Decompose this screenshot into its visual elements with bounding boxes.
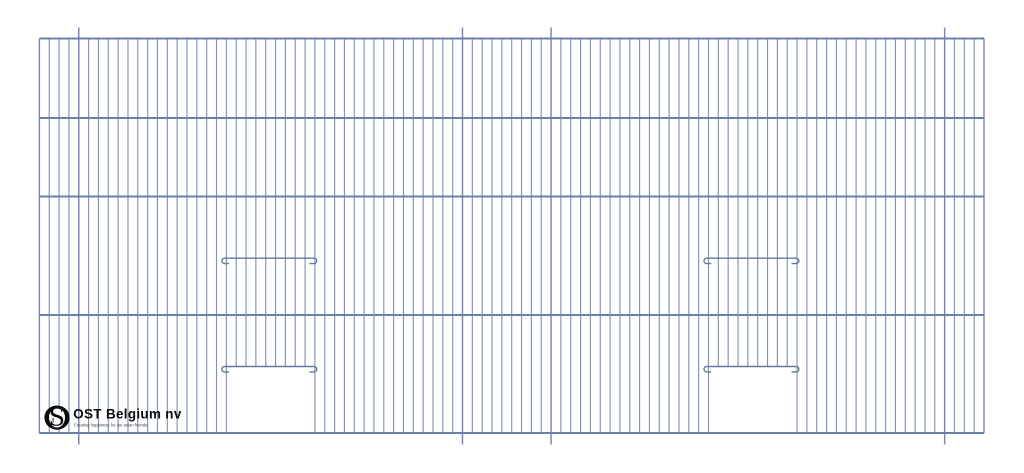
svg-text:OST Belgium nv: OST Belgium nv <box>73 406 182 421</box>
svg-text:Creating happiness for our avi: Creating happiness for our avian friends <box>74 422 147 427</box>
